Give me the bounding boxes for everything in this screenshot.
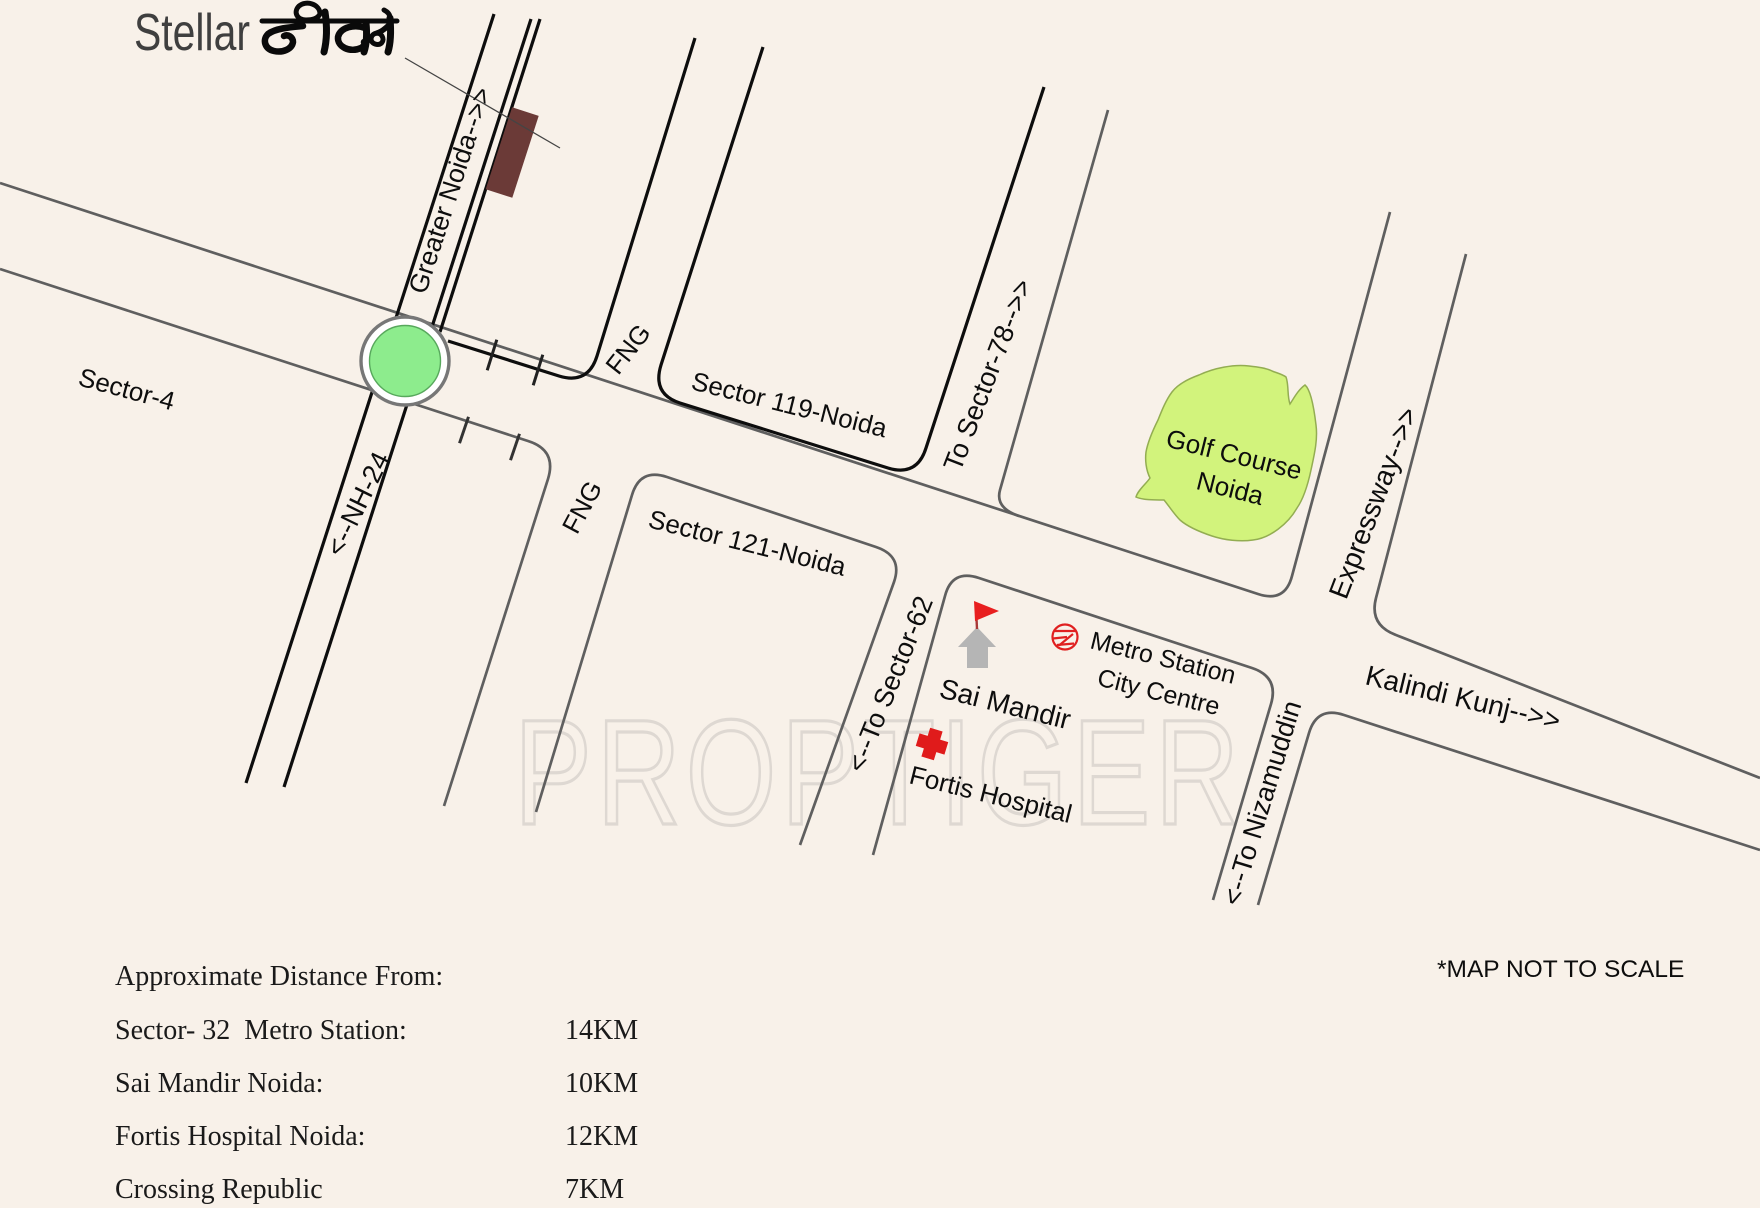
svg-text:Approximate Distance From:: Approximate Distance From: <box>115 961 443 992</box>
svg-text:10KM: 10KM <box>565 1068 638 1099</box>
svg-text:Sai Mandir Noida:: Sai Mandir Noida: <box>115 1068 323 1099</box>
svg-text:14KM: 14KM <box>565 1015 638 1046</box>
svg-text:*MAP NOT TO SCALE: *MAP NOT TO SCALE <box>1437 956 1684 983</box>
svg-text:Crossing Republic: Crossing Republic <box>115 1174 323 1205</box>
svg-text:Sector- 32 Metro Station:: Sector- 32 Metro Station: <box>115 1015 407 1046</box>
svg-text:Stellar: Stellar <box>134 4 250 62</box>
svg-text:Fortis Hospital Noida:: Fortis Hospital Noida: <box>115 1121 365 1152</box>
svg-text:12KM: 12KM <box>565 1121 638 1152</box>
svg-text:7KM: 7KM <box>565 1174 624 1205</box>
